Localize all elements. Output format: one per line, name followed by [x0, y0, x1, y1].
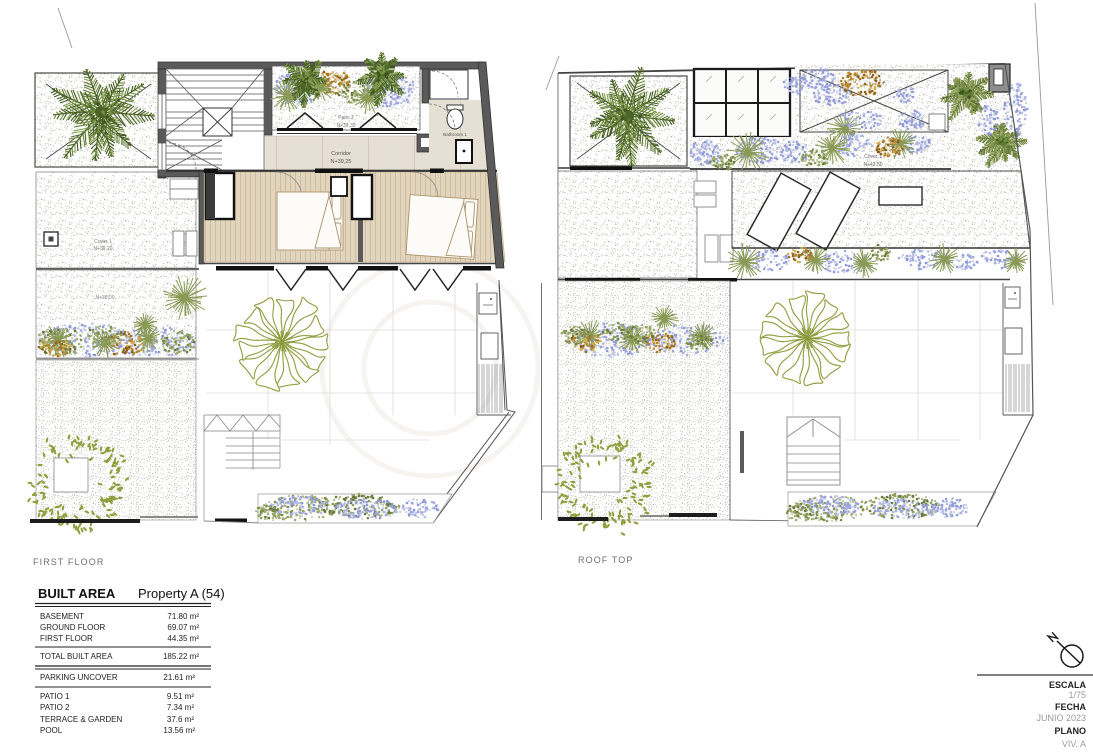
svg-text:7.34 m²: 7.34 m²	[167, 703, 194, 712]
svg-text:Bathroom 1: Bathroom 1	[443, 132, 467, 137]
svg-text:ESCALA: ESCALA	[1049, 680, 1087, 690]
svg-text:PATIO 2: PATIO 2	[40, 703, 70, 712]
svg-text:TOTAL BUILT AREA: TOTAL BUILT AREA	[40, 652, 113, 661]
svg-text:Corridor: Corridor	[331, 151, 351, 157]
svg-text:44.35 m²: 44.35 m²	[167, 634, 199, 643]
svg-text:N+38,00: N+38,00	[95, 295, 114, 301]
svg-text:VIV. A: VIV. A	[1062, 739, 1086, 749]
svg-text:Property A (54): Property A (54)	[138, 586, 225, 601]
svg-text:FECHA: FECHA	[1055, 702, 1086, 712]
svg-text:Cover 1: Cover 1	[864, 154, 882, 160]
svg-text:FIRST FLOOR: FIRST FLOOR	[40, 634, 93, 643]
svg-text:PATIO 1: PATIO 1	[40, 692, 70, 701]
svg-text:BUILT AREA: BUILT AREA	[38, 586, 116, 601]
svg-text:185.22 m²: 185.22 m²	[163, 652, 199, 661]
svg-text:PARKING UNCOVER: PARKING UNCOVER	[40, 673, 118, 682]
svg-text:69.07 m²: 69.07 m²	[167, 623, 199, 632]
svg-text:Cover 1: Cover 1	[94, 239, 112, 245]
svg-text:TERRACE & GARDEN: TERRACE & GARDEN	[40, 715, 122, 724]
svg-text:BASEMENT: BASEMENT	[40, 612, 84, 621]
svg-text:N+42,50: N+42,50	[863, 162, 882, 168]
svg-text:GROUND FLOOR: GROUND FLOOR	[40, 623, 106, 632]
svg-text:FIRST FLOOR: FIRST FLOOR	[33, 557, 104, 567]
svg-text:13.56 m²: 13.56 m²	[163, 726, 195, 735]
svg-text:9.51 m²: 9.51 m²	[167, 692, 194, 701]
svg-text:ROOF TOP: ROOF TOP	[578, 555, 633, 565]
svg-text:POOL: POOL	[40, 726, 63, 735]
svg-text:PLANO: PLANO	[1055, 726, 1087, 736]
svg-text:1/75: 1/75	[1068, 690, 1086, 700]
svg-text:N+39,25: N+39,25	[331, 159, 352, 165]
svg-text:71.80 m²: 71.80 m²	[167, 612, 199, 621]
svg-text:JUNIO 2023: JUNIO 2023	[1036, 713, 1086, 723]
svg-text:21.61 m²: 21.61 m²	[163, 673, 195, 682]
svg-text:37.6 m²: 37.6 m²	[167, 715, 194, 724]
svg-text:N+39,20: N+39,20	[93, 246, 112, 252]
svg-text:Patio 2: Patio 2	[338, 115, 354, 121]
